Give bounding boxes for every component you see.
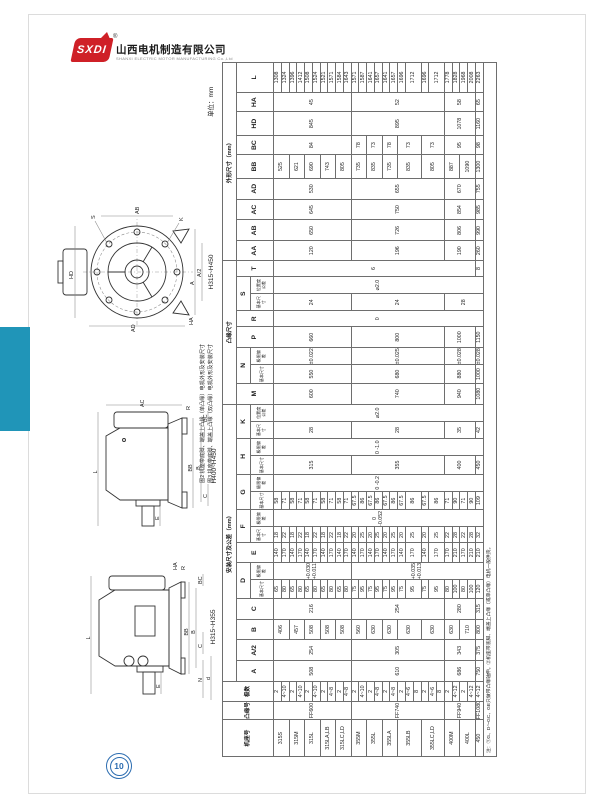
table-cell: 0 xyxy=(274,311,484,327)
table-cell: 560 xyxy=(351,619,367,640)
table-cell: 95 xyxy=(406,580,422,598)
dim-label-b: B xyxy=(196,466,202,470)
table-cell: N xyxy=(237,348,251,384)
table-cell: BC xyxy=(237,135,274,155)
table-cell: P xyxy=(237,327,274,348)
table-cell: 1657 xyxy=(374,63,382,93)
table-cell: 58 xyxy=(289,491,297,509)
table-cell: 25 xyxy=(390,527,398,543)
table-cell: 18 xyxy=(274,527,282,543)
table-cell: 20 xyxy=(398,527,406,543)
table-cell: 210 xyxy=(452,543,460,563)
table-cell: 755 xyxy=(475,178,483,199)
table-cell: 95 xyxy=(429,580,445,598)
table-cell: ±0.028 xyxy=(444,348,475,365)
table-cell: 375 xyxy=(475,640,483,661)
table-cell: 140 xyxy=(382,543,390,563)
table-cell: AA xyxy=(237,241,274,261)
table-cell: 4~12 xyxy=(475,682,483,702)
dim-label-r: R xyxy=(181,566,187,570)
table-cell: 735 xyxy=(351,155,367,178)
table-cell: 140 xyxy=(367,543,375,563)
table-cell: 1641 xyxy=(367,63,375,93)
table-cell: 18 xyxy=(336,527,344,543)
table-cell: AC xyxy=(237,199,274,220)
company-name-cn: 山西电机制造有限公司 xyxy=(116,42,226,57)
table-cell: 1571 xyxy=(328,63,336,93)
table-cell: 170 xyxy=(281,543,289,563)
table-cell: 80 xyxy=(444,580,452,598)
table-cell: 75 xyxy=(367,580,375,598)
table-cell: 457 xyxy=(289,619,305,640)
table-cell: 355 xyxy=(351,456,444,474)
table-cell: 805 xyxy=(336,155,352,178)
page-number-badge: 10 xyxy=(106,753,132,779)
table-cell: 1300 xyxy=(475,155,483,178)
table-cell: 170 xyxy=(359,543,367,563)
page-number: 10 xyxy=(110,757,129,776)
table-cell: 140 xyxy=(336,543,344,563)
table-cell: 355LA xyxy=(382,720,398,757)
table-cell: BB xyxy=(237,155,274,178)
table-cell: 极限偏差 xyxy=(251,510,274,527)
table-cell: 305 xyxy=(351,640,444,661)
table-cell: 凸缘尺寸 xyxy=(223,261,237,405)
table-cell: 887 xyxy=(444,155,460,178)
table-cell: 170 xyxy=(406,543,422,563)
dim-label-b: B xyxy=(191,630,197,634)
table-cell: 71 xyxy=(444,491,452,509)
table-cell: 机座号 xyxy=(223,720,274,757)
table-cell: 基本尺寸 xyxy=(251,456,274,474)
figure-side-view-2-wrap: L E N d BB B C BC R HA H315~H355 xyxy=(85,552,217,702)
table-cell: 22 xyxy=(297,527,305,543)
table-cell: 355L xyxy=(367,720,383,757)
table-cell: 2 xyxy=(336,682,344,702)
table-cell: 4~8 xyxy=(374,682,382,702)
table-cell: 84 xyxy=(274,135,352,155)
dim-label-bc: BC xyxy=(198,576,204,584)
table-cell: 95 xyxy=(444,135,475,155)
table-cell: 508 xyxy=(305,619,321,640)
table-cell: M xyxy=(237,383,274,404)
table-cell: 2 xyxy=(320,682,328,702)
table-cell: 凸缘号 xyxy=(223,701,274,719)
table-cell: 80 xyxy=(297,580,305,598)
table-cell: C xyxy=(237,598,274,619)
table-cell: 1712 xyxy=(429,63,445,93)
dim-label-l: L xyxy=(86,636,92,639)
table-cell: 0 -0.2 xyxy=(274,474,484,491)
table-cell: 65 xyxy=(289,580,297,598)
table-cell: 1643 xyxy=(343,63,351,93)
table-cell: 196 xyxy=(351,241,444,261)
flange-view-drawing: HD AD S K A A/2 AB HA H315~H450 xyxy=(55,205,215,335)
table-cell: 1160 xyxy=(475,112,483,135)
table-cell: 650 xyxy=(274,220,352,241)
table-cell: T xyxy=(237,261,274,277)
table-cell: 170 xyxy=(374,543,382,563)
table-cell: 985 xyxy=(475,199,483,220)
table-cell: 2 xyxy=(421,682,429,702)
dim-label-e: E xyxy=(155,516,161,520)
table-cell: 22 xyxy=(460,527,468,543)
table-cell: 安装尺寸及公差（mm） xyxy=(223,404,237,682)
table-cell: 65 xyxy=(305,580,313,598)
table-cell: FF740 xyxy=(351,701,444,719)
table-cell: 0 -1.0 xyxy=(274,439,484,456)
table-cell: 170 xyxy=(429,543,445,563)
table-cell: 1778 xyxy=(444,63,452,93)
table-cell: 854 xyxy=(444,199,475,220)
table-cell: 28 xyxy=(274,421,352,438)
table-cell: 极限偏差 xyxy=(251,439,274,456)
table-cell: 2 xyxy=(305,682,313,702)
table-cell: 极限偏差 xyxy=(251,563,274,580)
table-cell: 18 xyxy=(289,527,297,543)
table-cell: 1150 xyxy=(475,327,483,348)
table-cell: 25 xyxy=(429,527,445,543)
table-cell: 1696 xyxy=(421,63,429,93)
dim-label-d: d xyxy=(206,677,212,680)
table-cell: 1396 xyxy=(289,63,297,93)
table-cell: 805 xyxy=(421,155,444,178)
table-cell: 28 xyxy=(468,527,476,543)
company-name-en: SHANXI ELECTRIC MOTOR MANUFACTURING Co.,… xyxy=(116,56,233,61)
table-cell: 2 xyxy=(398,682,406,702)
table-cell: 170 xyxy=(312,543,320,563)
side-view-2-drawing: L E N d BB B C BC R HA H315~H355 xyxy=(85,552,217,702)
table-cell: 2 xyxy=(382,682,390,702)
table-cell: 25 xyxy=(406,527,422,543)
figure-side-view-1: L AC E BB B C BC R H400~H450 xyxy=(92,400,218,532)
dim-label-bb: BB xyxy=(184,628,190,636)
table-cell: 140 xyxy=(351,543,359,563)
table-cell: FF940 xyxy=(444,701,475,719)
table-cell: 58 xyxy=(336,491,344,509)
table-cell: 610 xyxy=(351,661,444,682)
table-cell: F xyxy=(237,510,251,543)
table-cell: 1090 xyxy=(460,155,476,178)
table-cell: 2008 xyxy=(468,63,476,93)
table-cell: 20 xyxy=(351,527,359,543)
dim-label-ad: AD xyxy=(131,324,137,332)
nameplate xyxy=(135,606,155,636)
table-cell: 基本尺寸 xyxy=(251,491,274,509)
table-cell: 22 xyxy=(328,527,336,543)
table-cell: 680 xyxy=(351,365,444,383)
table-cell: 58 xyxy=(320,491,328,509)
side-view-1-drawing: L AC E BB B C BC R H400~H450 xyxy=(92,400,218,532)
table-cell: 2 xyxy=(460,682,468,702)
table-cell: 90 xyxy=(468,491,476,509)
dimension-table-rot: 机座号凸缘号极数安装尺寸及公差（mm）凸缘尺寸外形尺寸（mm）AA/2BCDEF… xyxy=(222,62,492,757)
dimension-table-wrap: 机座号凸缘号极数安装尺寸及公差（mm）凸缘尺寸外形尺寸（mm）AA/2BCDEF… xyxy=(222,62,492,757)
dim-label-a: A xyxy=(190,281,196,285)
figure1-caption: H315~H450 xyxy=(208,254,215,289)
table-cell: 67.5 xyxy=(367,491,375,509)
table-cell: 71 xyxy=(328,491,336,509)
table-cell: 58 xyxy=(305,491,313,509)
table-cell: 120 xyxy=(274,241,352,261)
table-cell: 95 xyxy=(390,580,398,598)
table-cell: +0.030 +0.011 xyxy=(274,563,352,580)
table-cell: 655 xyxy=(351,178,444,199)
table-cell: 位置度公差 xyxy=(251,276,274,293)
figure-side-view-1-wrap: L AC E BB B C BC R H400~H450 xyxy=(92,400,218,532)
table-cell: 25 xyxy=(359,527,367,543)
table-cell: 343 xyxy=(444,640,475,661)
table-cell: B xyxy=(237,619,274,640)
table-cell: 600 xyxy=(274,383,352,404)
catalog-page: { "page": { "unit_label": "单位：mm", "page… xyxy=(0,0,600,808)
table-cell: 25 xyxy=(374,527,382,543)
shaft xyxy=(143,672,155,694)
table-cell: 75 xyxy=(421,580,429,598)
table-cell: H xyxy=(237,439,251,475)
foot-left xyxy=(173,301,189,315)
figure-flange-view: HD AD S K A A/2 AB HA H315~H450 xyxy=(55,205,215,335)
dim-label-ac: AC xyxy=(140,400,146,407)
table-cell: 4~10 xyxy=(312,682,320,702)
table-cell: HA xyxy=(237,92,274,112)
table-cell: E xyxy=(237,543,274,563)
dim-label-c: C xyxy=(203,494,209,498)
table-cell: 170 xyxy=(297,543,305,563)
table-cell: 80 xyxy=(312,580,320,598)
motor-body xyxy=(106,428,168,500)
table-cell: 400L xyxy=(460,720,476,757)
table-cell: 基本尺寸 xyxy=(251,421,274,438)
table-cell: 726 xyxy=(351,220,444,241)
table-cell: 65 xyxy=(475,92,483,112)
table-cell: 73 xyxy=(367,135,383,155)
unit-label-wrap: 单位：mm xyxy=(205,62,223,117)
figure-side-view-2: L E N d BB B C BC R HA H315~H355 xyxy=(85,552,217,702)
feet xyxy=(168,418,182,508)
table-cell: 1587 xyxy=(359,63,367,93)
table-cell: 80 xyxy=(460,580,468,598)
table-cell: 58 xyxy=(444,92,475,112)
table-cell: 254 xyxy=(351,598,444,619)
table-cell: 2 xyxy=(351,682,359,702)
table-cell: 80 xyxy=(343,580,351,598)
table-cell: 660 xyxy=(274,327,352,348)
table-cell: 4~10 xyxy=(281,682,289,702)
table-cell: 基本尺寸 xyxy=(251,580,274,598)
table-cell: FF1080 xyxy=(475,701,483,719)
table-cell: 315L xyxy=(305,720,321,757)
table-cell: 1080 xyxy=(475,383,483,404)
table-cell: 4~12 xyxy=(468,682,476,702)
table-cell: 743 xyxy=(320,155,336,178)
cable-gland-1 xyxy=(124,656,134,666)
table-cell: 75 xyxy=(351,580,359,598)
table-cell: 880 xyxy=(444,365,475,383)
table-cell: 86 xyxy=(359,491,367,509)
table-cell: 630 xyxy=(444,619,460,640)
table-cell: 8 xyxy=(437,682,445,702)
table-cell: 140 xyxy=(274,543,282,563)
table-cell: 845 xyxy=(274,112,352,135)
table-cell: 630 xyxy=(398,619,421,640)
table-cell: 450 xyxy=(475,456,483,474)
table-cell: 315 xyxy=(475,598,483,619)
table-cell: 140 xyxy=(398,543,406,563)
fan-cowl xyxy=(109,576,165,590)
table-cell: 基本尺寸 xyxy=(251,294,274,311)
table-cell: 58 xyxy=(274,491,282,509)
table-cell: 4~6 xyxy=(429,682,437,702)
table-cell: 645 xyxy=(274,199,352,220)
table-cell: 28 xyxy=(452,527,460,543)
table-cell: 100 xyxy=(468,580,476,598)
table-cell: S xyxy=(237,276,251,310)
figure2-caption: H400~H450 xyxy=(211,448,218,483)
table-cell: K xyxy=(237,404,251,439)
table-cell: 670 xyxy=(444,178,475,199)
table-cell: 8 xyxy=(475,261,483,277)
table-cell: 4~10 xyxy=(359,682,367,702)
table-cell: 210 xyxy=(468,543,476,563)
table-cell: 20 xyxy=(382,527,390,543)
table-cell: 315LA,LB xyxy=(320,720,336,757)
table-cell: 24 xyxy=(351,294,444,311)
registered-mark: ® xyxy=(113,34,117,40)
fan-cowl xyxy=(114,412,168,428)
table-cell: 895 xyxy=(351,112,444,135)
table-cell: 86 xyxy=(390,491,398,509)
table-cell: 1712 xyxy=(406,63,422,93)
table-cell: 98 xyxy=(475,135,483,155)
table-cell: 990 xyxy=(475,220,483,241)
table-cell: 22 xyxy=(444,527,452,543)
table-cell: 1324 xyxy=(281,63,289,93)
table-cell: 140 xyxy=(289,543,297,563)
cable-gland-2 xyxy=(138,656,148,666)
foot-right xyxy=(173,229,189,243)
shaft xyxy=(142,506,154,526)
table-cell: 315LC,LD xyxy=(336,720,352,757)
table-cell: 740 xyxy=(351,383,444,404)
table-cell: 750 xyxy=(351,199,444,220)
table-cell: 550 xyxy=(274,365,352,383)
table-cell: 835 xyxy=(398,155,421,178)
table-cell: 835 xyxy=(367,155,383,178)
table-cell: 95 xyxy=(374,580,382,598)
table-cell: 73 xyxy=(398,135,421,155)
figure3-caption: H315~H355 xyxy=(210,609,217,644)
table-cell: 22 xyxy=(343,527,351,543)
table-cell: 940 xyxy=(444,383,475,404)
table-cell: ±0.022 xyxy=(274,348,352,365)
table-cell: 1524 xyxy=(312,63,320,93)
table-cell: 8 xyxy=(413,682,421,702)
table-cell: 4~8 xyxy=(328,682,336,702)
table-cell: 525 xyxy=(274,155,290,178)
table-cell: 806 xyxy=(444,220,475,241)
table-cell: 800 xyxy=(351,327,444,348)
table-cell: 71 xyxy=(281,491,289,509)
table-cell: 109 xyxy=(475,491,483,509)
blue-side-block xyxy=(0,327,30,431)
table-cell: 686 xyxy=(444,661,475,682)
table-cell: 170 xyxy=(444,543,452,563)
table-cell: 18 xyxy=(320,527,328,543)
table-cell: 735 xyxy=(382,155,398,178)
table-cell: 315M xyxy=(289,720,305,757)
feet xyxy=(169,582,181,674)
table-cell: 20 xyxy=(421,527,429,543)
dim-label-e: E xyxy=(156,684,162,688)
table-cell: 75 xyxy=(382,580,390,598)
table-cell: HD xyxy=(237,112,274,135)
table-cell: 690 xyxy=(305,155,321,178)
table-cell: 71 xyxy=(343,491,351,509)
table-cell: 4~10 xyxy=(297,682,305,702)
table-cell: 32 xyxy=(475,527,483,543)
table-cell: 1000 xyxy=(475,365,483,383)
table-cell: 73 xyxy=(421,135,444,155)
table-cell: ±0.025 xyxy=(351,348,444,365)
table-cell: 210 xyxy=(475,543,483,563)
table-cell: 630 xyxy=(382,619,398,640)
table-cell: 406 xyxy=(274,619,290,640)
dim-label-ha: HA xyxy=(189,317,195,325)
table-cell: 1308 xyxy=(274,63,282,93)
table-cell: 78 xyxy=(382,135,398,155)
dim-label-ab: AB xyxy=(135,206,141,214)
table-cell: 极限偏差 xyxy=(251,474,274,491)
table-cell: AD xyxy=(237,178,274,199)
table-cell: A xyxy=(237,661,274,682)
table-cell: 4~8 xyxy=(390,682,398,702)
table-cell: G xyxy=(237,474,251,510)
table-cell: 基本尺寸 xyxy=(251,527,274,543)
table-cell: 位置度公差 xyxy=(251,404,274,421)
table-cell: 0 -0.052 xyxy=(274,510,484,527)
table-cell: L xyxy=(237,63,274,93)
table-cell: 1571 xyxy=(351,63,359,93)
table-cell: 71 xyxy=(460,491,468,509)
unit-label: 单位：mm xyxy=(205,62,223,117)
table-cell: 52 xyxy=(351,92,444,112)
table-cell: 86 xyxy=(429,491,445,509)
table-cell: 67.5 xyxy=(382,491,390,509)
table-cell: 170 xyxy=(328,543,336,563)
table-cell: 450 xyxy=(475,720,483,757)
table-cell: 71 xyxy=(297,491,305,509)
table-cell: 355M xyxy=(351,720,367,757)
table-cell: 2 xyxy=(444,682,452,702)
table-cell: 基本尺寸 xyxy=(251,365,274,383)
table-cell: 1657 xyxy=(390,63,398,93)
table-cell: 42 xyxy=(475,421,483,438)
table-cell: 315 xyxy=(274,456,352,474)
table-cell: 2 xyxy=(274,682,282,702)
table-cell: 140 xyxy=(421,543,429,563)
table-cell: D xyxy=(237,563,251,599)
table-cell: 90 xyxy=(452,491,460,509)
company-logo: SXDI xyxy=(70,38,113,62)
table-cell: 355LB xyxy=(398,720,421,757)
table-cell: 67.5 xyxy=(398,491,406,509)
table-cell: 67.5 xyxy=(421,491,429,509)
logo-text: SXDI xyxy=(77,44,108,56)
table-cell: ⌀2.0 xyxy=(274,276,484,293)
table-cell: 710 xyxy=(460,619,476,640)
table-cell: 315S xyxy=(274,720,290,757)
